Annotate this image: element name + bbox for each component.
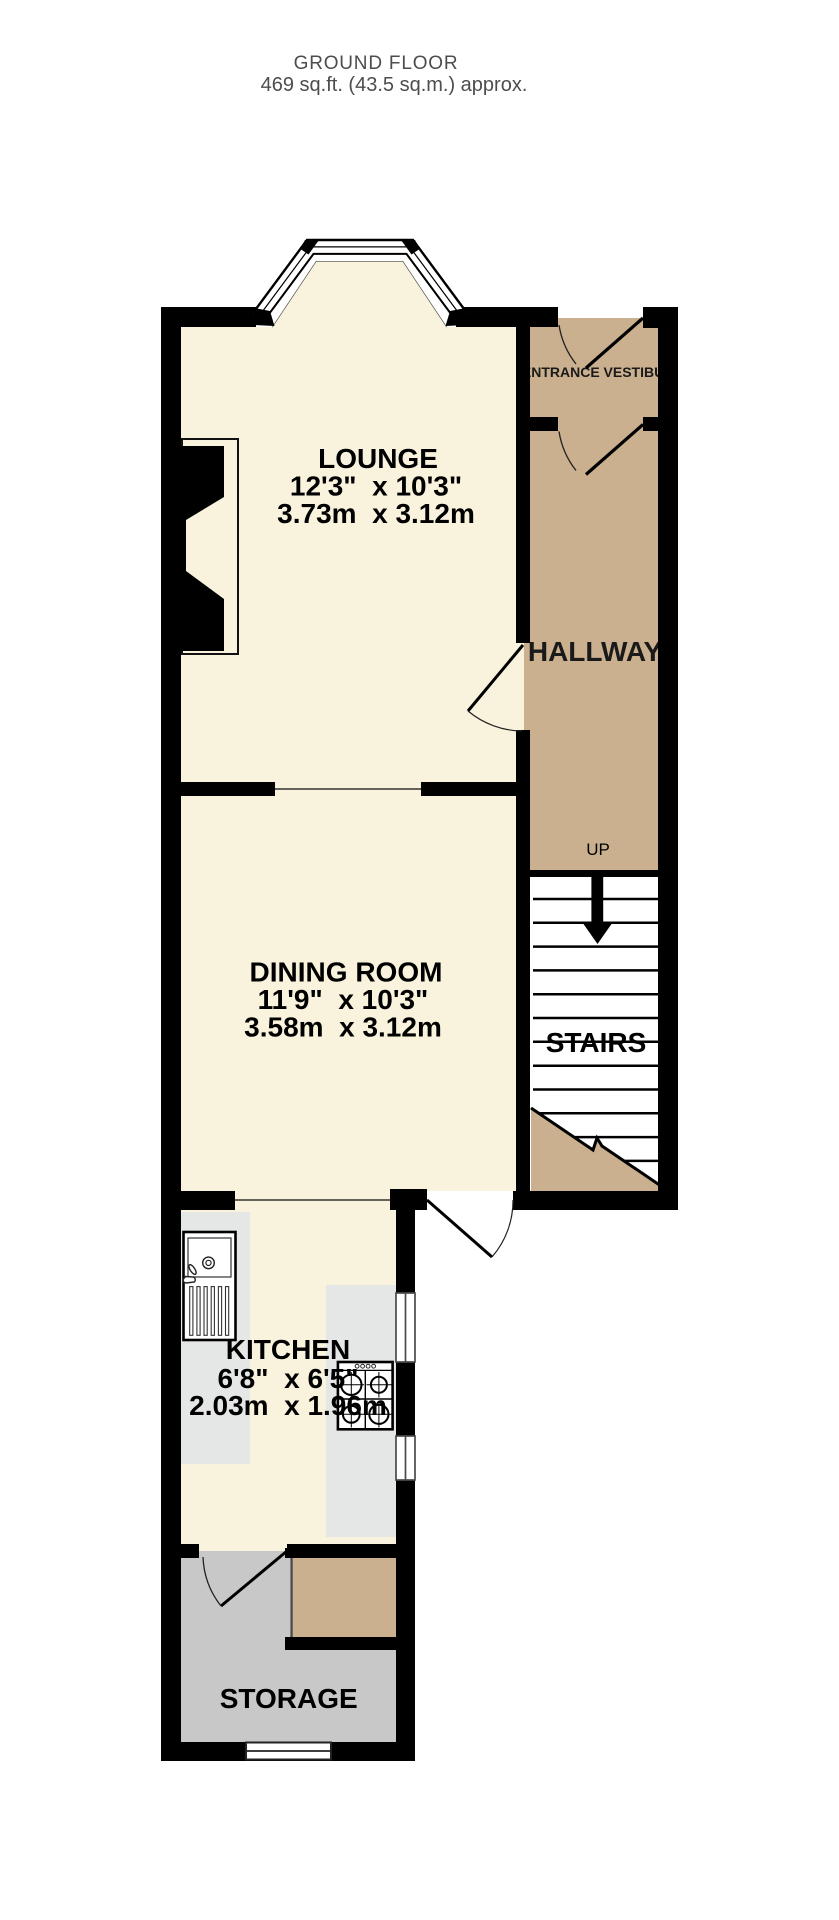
svg-text:GROUND FLOOR: GROUND FLOOR [294,53,459,74]
svg-text:STAIRS: STAIRS [546,1027,647,1058]
svg-text:469 sq.ft. (43.5 sq.m.) approx: 469 sq.ft. (43.5 sq.m.) approx. [261,74,528,96]
svg-text:HALLWAY: HALLWAY [528,636,663,667]
svg-text:2.03m x 1.96m: 2.03m x 1.96m [189,1390,387,1421]
svg-text:STORAGE: STORAGE [220,1683,358,1714]
svg-text:LOUNGE: LOUNGE [318,443,438,474]
svg-text:DINING ROOM: DINING ROOM [250,957,443,988]
svg-text:11'9" x 10'3": 11'9" x 10'3" [258,984,429,1015]
svg-text:3.58m x 3.12m: 3.58m x 3.12m [244,1012,442,1043]
svg-text:UP: UP [586,840,610,859]
svg-text:KITCHEN: KITCHEN [226,1334,350,1365]
svg-text:12'3" x 10'3": 12'3" x 10'3" [290,471,462,502]
svg-text:3.73m x 3.12m: 3.73m x 3.12m [277,498,475,529]
